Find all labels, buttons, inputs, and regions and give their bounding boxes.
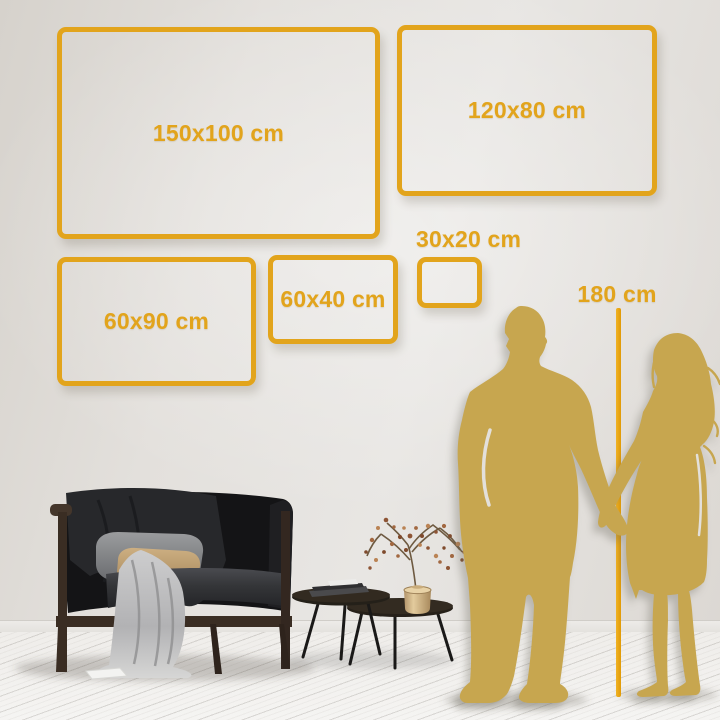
size-label-30x20: 30x20 cm (416, 226, 521, 253)
woman-leg-front (637, 594, 668, 697)
height-label-text: 180 cm (577, 281, 656, 307)
size-frame-60x90: 60x90 cm (57, 257, 256, 386)
size-label: 60x90 cm (104, 308, 209, 335)
size-label: 60x40 cm (280, 286, 385, 313)
size-label: 150x100 cm (153, 120, 284, 147)
size-frame-60x40: 60x40 cm (268, 255, 398, 344)
size-label: 30x20 cm (416, 226, 521, 252)
size-frame-150x100: 150x100 cm (57, 27, 380, 239)
size-frame-120x80: 120x80 cm (397, 25, 657, 196)
size-comparison-infographic: 180 cm 150x100 cm 120x80 cm (0, 0, 720, 720)
woman-silhouette (598, 333, 715, 599)
size-label: 120x80 cm (468, 97, 586, 124)
size-frame-30x20 (417, 257, 482, 308)
height-reference-label: 180 cm (555, 281, 679, 308)
woman-leg-back (670, 591, 700, 696)
